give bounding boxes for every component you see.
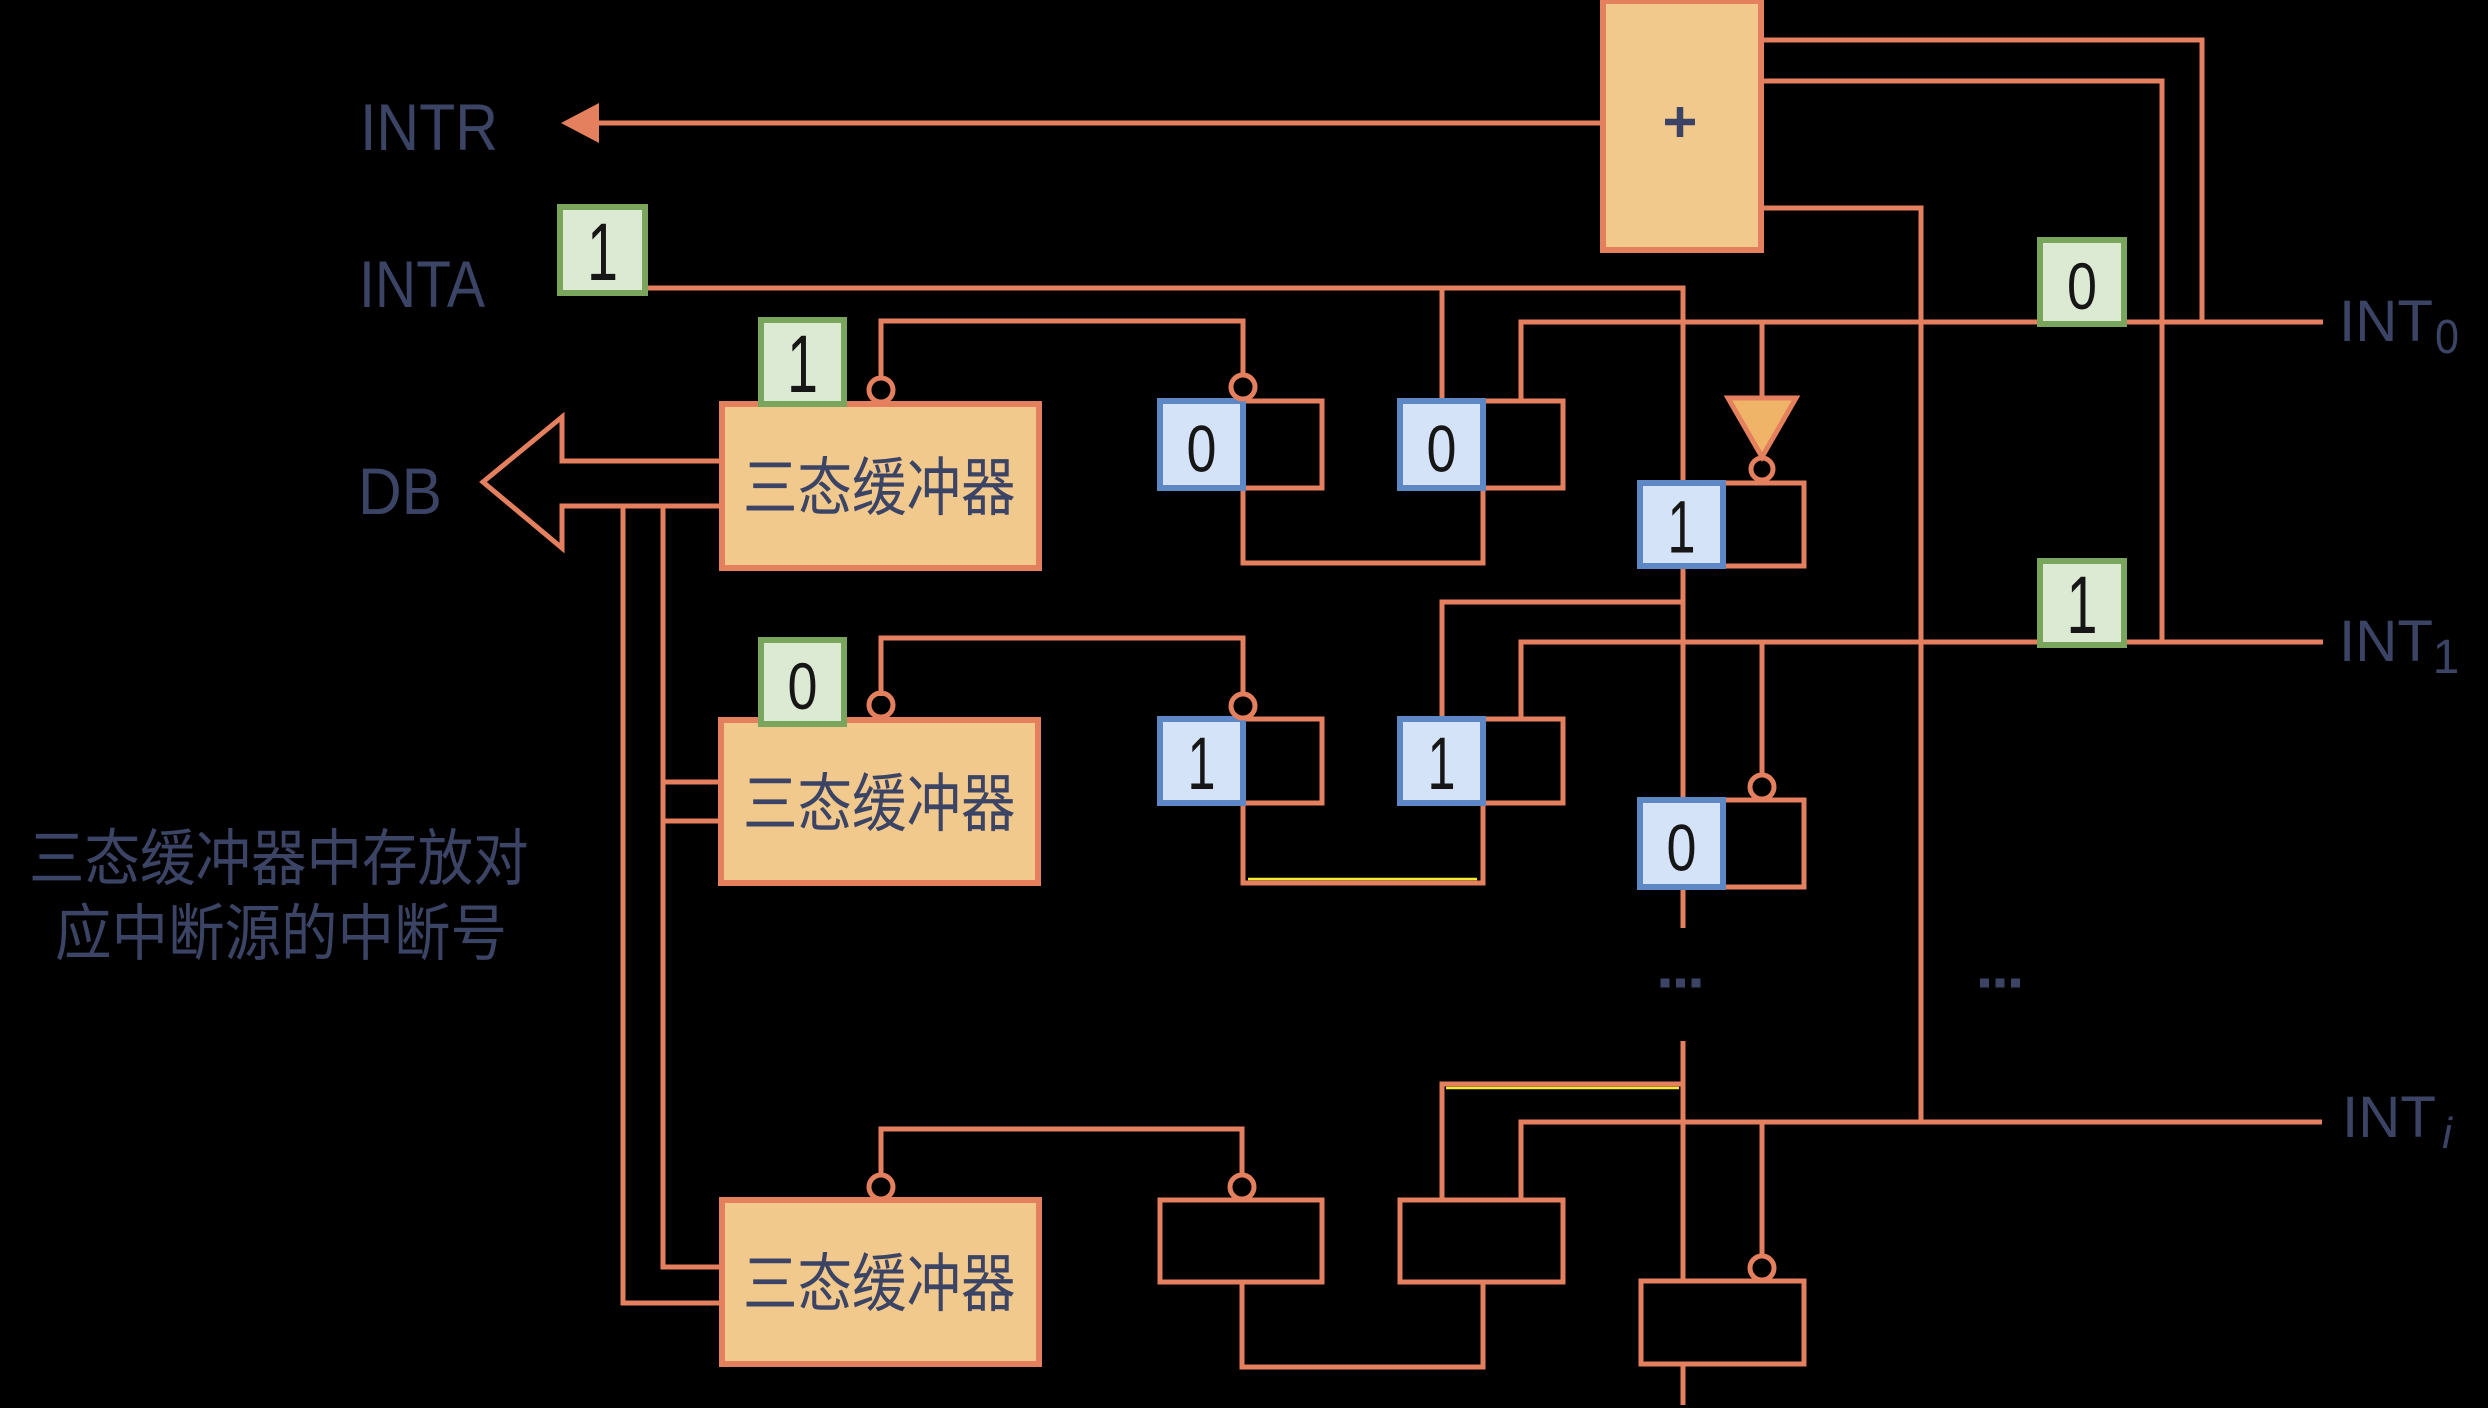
svg-text:i: i — [2442, 1109, 2453, 1158]
svg-text:INT: INT — [2342, 1085, 2436, 1150]
svg-text:INTR: INTR — [360, 90, 498, 164]
svg-text:INT: INT — [2339, 289, 2433, 354]
svg-text:1: 1 — [2067, 560, 2098, 651]
svg-text:1: 1 — [787, 319, 818, 410]
svg-text:1: 1 — [1428, 722, 1456, 805]
svg-text:0: 0 — [2067, 249, 2097, 323]
svg-text:DB: DB — [358, 454, 442, 528]
svg-text:1: 1 — [1668, 486, 1696, 569]
svg-text:0: 0 — [2435, 311, 2459, 364]
svg-text:1: 1 — [2433, 631, 2460, 684]
svg-text:INTA: INTA — [359, 247, 485, 321]
svg-text:0: 0 — [788, 649, 818, 723]
svg-text:0: 0 — [1667, 811, 1697, 885]
svg-text:0: 0 — [1427, 412, 1457, 486]
svg-text:1: 1 — [587, 207, 618, 298]
svg-text:0: 0 — [1187, 412, 1217, 486]
svg-text:1: 1 — [1188, 722, 1216, 805]
svg-text:INT: INT — [2339, 609, 2433, 674]
